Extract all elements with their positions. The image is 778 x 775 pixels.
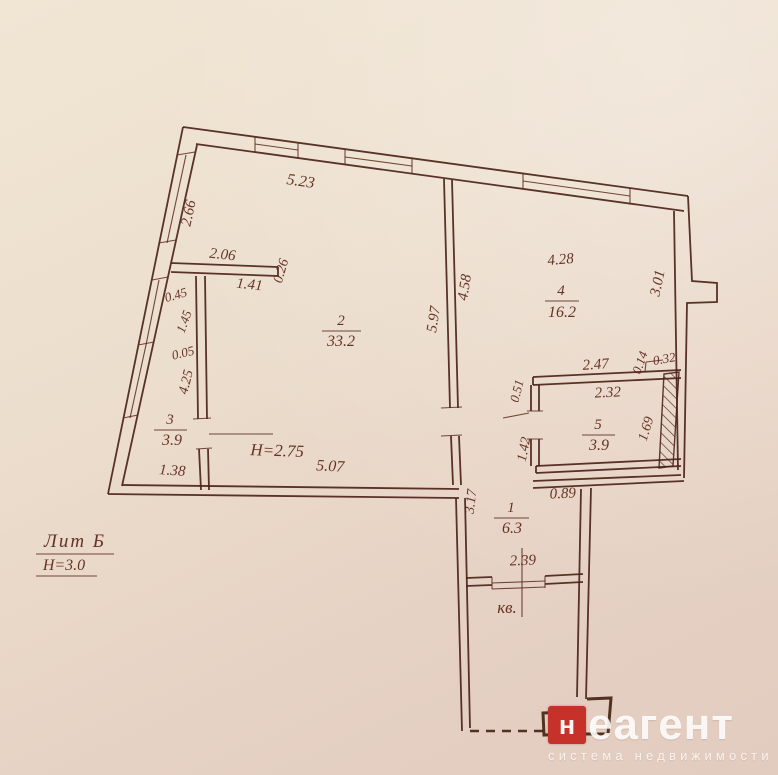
dim-2-66: 2.66: [179, 198, 200, 227]
room5-area: 3.9: [588, 437, 609, 454]
dim-4-58: 4.58: [455, 273, 475, 302]
scanned-floor-plan-page: 5.23 2.66 2.06 0.26 1.41 0.45 1.45 0.05 …: [0, 0, 778, 775]
corridor-right-wall: [577, 488, 591, 699]
dim-4-28: 4.28: [547, 251, 575, 269]
ceiling-height-label: H=2.75: [249, 440, 304, 461]
dim-3-01: 3.01: [647, 269, 668, 299]
room3-stub-wall: [171, 263, 278, 276]
wall-room2-room4: [441, 179, 462, 485]
top-wall: [183, 127, 688, 211]
dim-1-38: 1.38: [159, 462, 187, 480]
dim-0-45: 0.45: [163, 284, 189, 305]
dim-1-69: 1.69: [636, 415, 658, 443]
corridor-left-wall: [456, 498, 470, 731]
room1-number: 1: [507, 500, 515, 516]
dim-0-05: 0.05: [170, 342, 196, 362]
dim-2-39: 2.39: [509, 553, 536, 570]
building-height-label: Н=3.0: [42, 557, 85, 574]
hatched-wall: [645, 360, 679, 468]
neagent-brand-text: еагент: [588, 706, 734, 744]
dim-0-89: 0.89: [549, 485, 577, 502]
dim-2-06: 2.06: [209, 246, 237, 265]
dim-1-41: 1.41: [236, 276, 264, 295]
dim-5-97: 5.97: [424, 304, 444, 334]
room-labels: 2 33.2 4 16.2 3 3.9 5 3.9 1 6.3 кв.: [154, 283, 615, 617]
neagent-brand-row: н еагент: [548, 706, 766, 744]
bottom-wall-main: [108, 485, 459, 498]
neagent-watermark: н еагент система недвижимости: [548, 706, 766, 763]
dim-0-32: 0.32: [652, 349, 678, 368]
room3-number: 3: [165, 412, 174, 428]
room2-number: 2: [337, 313, 345, 329]
neagent-logo-box: н: [548, 706, 586, 744]
wall-room4-room5: [533, 370, 681, 385]
room2-area: 33.2: [326, 333, 355, 350]
room1-area: 6.3: [502, 520, 522, 537]
dim-5-07: 5.07: [316, 457, 346, 475]
dim-4-25: 4.25: [176, 368, 196, 395]
kv-label: кв.: [497, 598, 517, 617]
room5-number: 5: [594, 417, 602, 433]
floor-plan: 5.23 2.66 2.06 0.26 1.41 0.45 1.45 0.05 …: [0, 0, 778, 775]
neagent-tagline: система недвижимости: [548, 748, 766, 763]
dim-1-45: 1.45: [173, 308, 195, 335]
dim-5-23: 5.23: [286, 171, 316, 192]
dimension-labels: 5.23 2.66 2.06 0.26 1.41 0.45 1.45 0.05 …: [159, 171, 678, 569]
dim-0-51: 0.51: [507, 378, 527, 404]
lit-label: Лит Б: [43, 531, 106, 552]
dim-0-26: 0.26: [271, 257, 292, 285]
right-wall: [674, 196, 717, 478]
room4-number: 4: [557, 283, 565, 299]
room3-area: 3.9: [161, 432, 182, 449]
dim-2-47: 2.47: [582, 356, 611, 374]
title-block: Лит Б Н=3.0: [36, 531, 114, 576]
room4-area: 16.2: [548, 304, 576, 321]
dim-2-32: 2.32: [594, 384, 622, 401]
top-wall-windows: [255, 137, 630, 204]
neagent-logo-initial: н: [559, 710, 575, 741]
dim-3-17: 3.17: [462, 488, 480, 516]
